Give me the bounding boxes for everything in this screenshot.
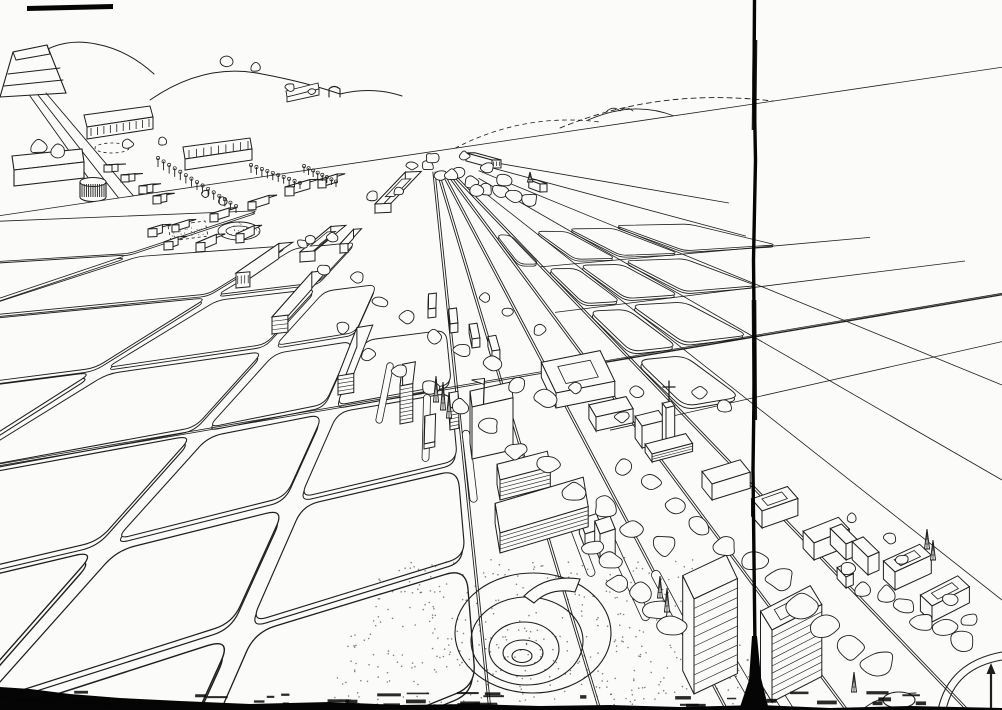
tree-blob <box>896 555 909 564</box>
building <box>424 414 436 449</box>
scanned-sketch-page <box>0 0 1002 710</box>
tree-blob <box>470 184 484 196</box>
building <box>449 308 458 333</box>
tree-blob <box>426 154 439 163</box>
tree-blob <box>502 308 513 316</box>
building <box>428 293 436 318</box>
tree-blob <box>305 235 315 243</box>
tree-blob <box>317 265 330 275</box>
tree-blob <box>394 187 404 194</box>
tree-blob <box>159 137 167 145</box>
building <box>683 555 738 694</box>
tree-blob <box>841 562 855 574</box>
tree-blob <box>220 56 233 67</box>
tree-blob <box>847 513 856 523</box>
city-plan-perspective-drawing <box>0 0 1002 710</box>
